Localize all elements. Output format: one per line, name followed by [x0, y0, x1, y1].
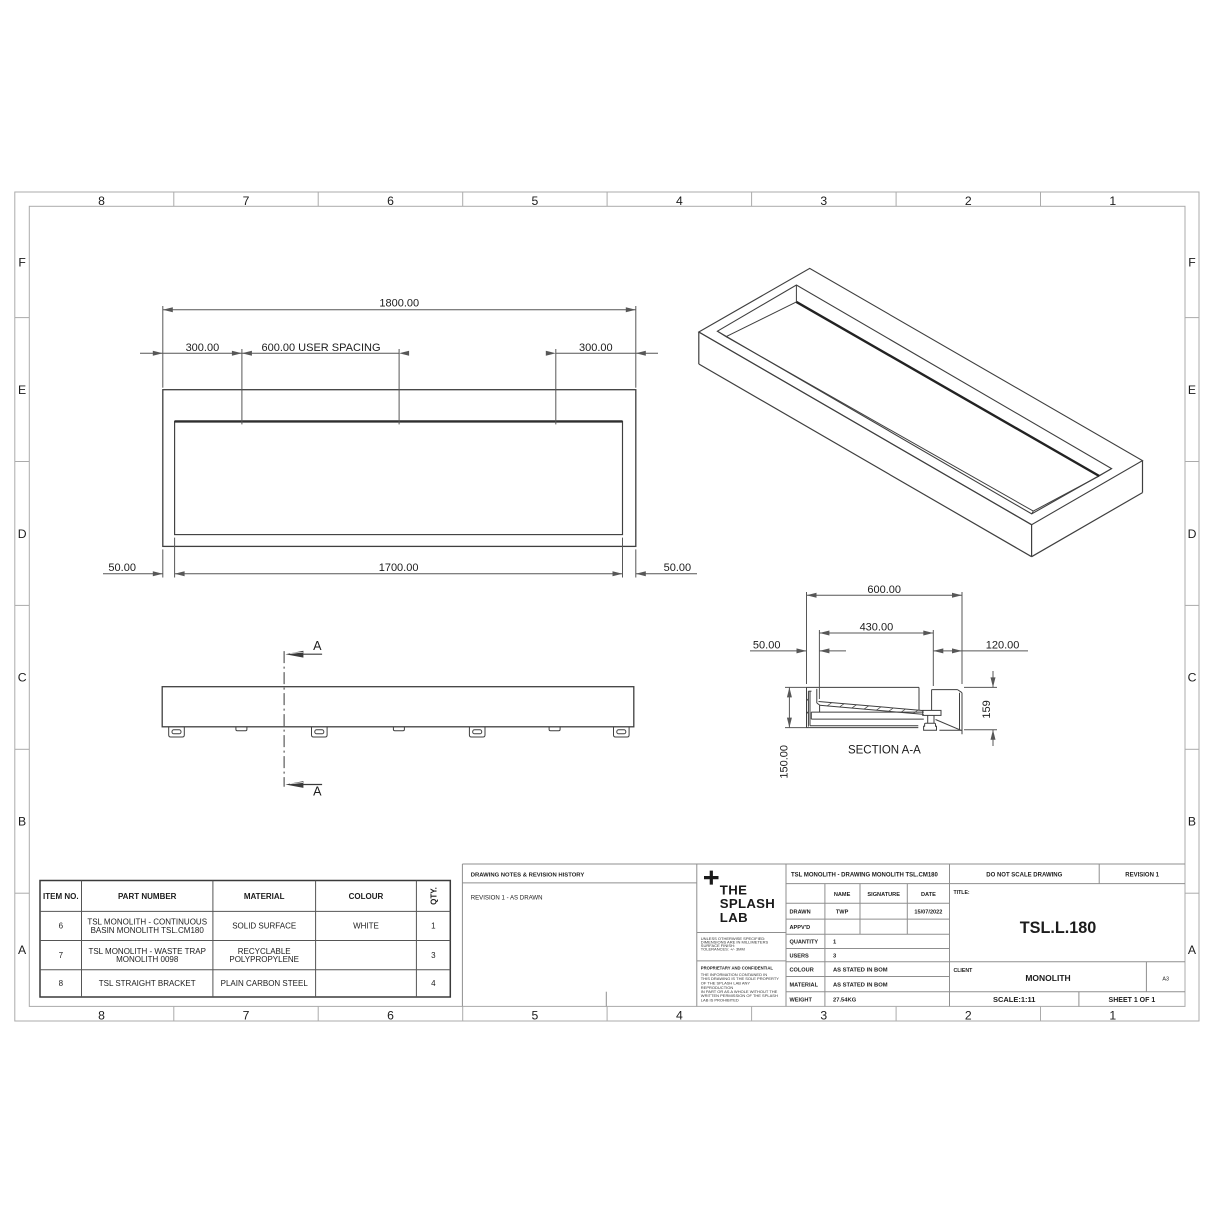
svg-text:A3: A3	[1162, 976, 1169, 982]
svg-text:MATERIAL: MATERIAL	[790, 982, 819, 988]
svg-text:4: 4	[431, 979, 436, 988]
svg-text:REVISION 1: REVISION 1	[1125, 873, 1159, 879]
svg-text:SHEET 1 OF 1: SHEET 1 OF 1	[1109, 997, 1156, 1004]
svg-text:MONOLITH: MONOLITH	[1025, 973, 1070, 983]
svg-text:PROPRIETARY AND CONFIDENTIAL: PROPRIETARY AND CONFIDENTIAL	[701, 966, 774, 971]
svg-text:5: 5	[532, 194, 539, 208]
svg-text:E: E	[18, 383, 26, 397]
svg-text:SPLASH: SPLASH	[720, 896, 775, 911]
svg-text:BASIN MONOLITH TSL.CM180: BASIN MONOLITH TSL.CM180	[91, 926, 205, 935]
svg-text:TOLERANCES: +/- 3MM: TOLERANCES: +/- 3MM	[701, 947, 745, 952]
svg-text:AS STATED IN BOM: AS STATED IN BOM	[833, 967, 888, 973]
svg-text:DATE: DATE	[921, 892, 936, 898]
svg-text:8: 8	[98, 194, 105, 208]
svg-text:430.00: 430.00	[860, 622, 894, 634]
svg-text:1: 1	[1109, 194, 1116, 208]
svg-text:150.00: 150.00	[779, 745, 791, 779]
svg-text:SECTION A-A: SECTION A-A	[848, 745, 921, 757]
svg-text:50.00: 50.00	[664, 562, 692, 574]
svg-text:ITEM NO.: ITEM NO.	[43, 892, 79, 901]
svg-text:TSL STRAIGHT BRACKET: TSL STRAIGHT BRACKET	[99, 979, 196, 988]
svg-text:QUANTITY: QUANTITY	[790, 940, 819, 946]
svg-text:D: D	[1188, 527, 1197, 541]
svg-text:DRAWING NOTES & REVISION HISTO: DRAWING NOTES & REVISION HISTORY	[471, 873, 585, 879]
svg-text:3: 3	[820, 194, 827, 208]
svg-text:USERS: USERS	[790, 954, 810, 960]
svg-text:REVISION 1 - AS DRAWN: REVISION 1 - AS DRAWN	[471, 895, 543, 902]
svg-text:C: C	[18, 671, 27, 685]
svg-text:AS STATED IN BOM: AS STATED IN BOM	[833, 982, 888, 988]
svg-text:C: C	[1188, 671, 1197, 685]
svg-text:SOLID SURFACE: SOLID SURFACE	[232, 922, 296, 931]
svg-text:159: 159	[981, 700, 993, 718]
svg-text:1700.00: 1700.00	[379, 562, 419, 574]
svg-text:A: A	[18, 943, 27, 957]
svg-text:3: 3	[820, 1009, 827, 1023]
svg-text:APPV'D: APPV'D	[790, 925, 811, 931]
svg-text:27.54KG: 27.54KG	[833, 997, 857, 1003]
svg-text:COLOUR: COLOUR	[349, 892, 384, 901]
svg-text:3: 3	[431, 951, 436, 960]
svg-text:PART NUMBER: PART NUMBER	[118, 892, 177, 901]
svg-text:5: 5	[532, 1009, 539, 1023]
svg-text:COLOUR: COLOUR	[790, 967, 814, 973]
svg-text:15/07/2022: 15/07/2022	[914, 910, 942, 916]
svg-text:WEIGHT: WEIGHT	[790, 997, 813, 1003]
svg-text:LAB IS PROHIBITED: LAB IS PROHIBITED	[701, 998, 739, 1003]
svg-text:8: 8	[98, 1009, 105, 1023]
svg-text:2: 2	[965, 1009, 972, 1023]
svg-text:1: 1	[431, 922, 436, 931]
svg-text:2: 2	[965, 194, 972, 208]
svg-text:50.00: 50.00	[108, 562, 136, 574]
svg-text:600.00 USER SPACING: 600.00 USER SPACING	[261, 342, 380, 354]
svg-text:SIGNATURE: SIGNATURE	[867, 892, 900, 898]
svg-text:D: D	[18, 527, 27, 541]
svg-text:CLIENT: CLIENT	[954, 968, 974, 974]
svg-text:7: 7	[59, 951, 64, 960]
svg-text:50.00: 50.00	[753, 640, 781, 652]
svg-text:4: 4	[676, 194, 683, 208]
svg-text:4: 4	[676, 1009, 683, 1023]
svg-text:A: A	[313, 639, 322, 653]
svg-text:6: 6	[387, 1009, 394, 1023]
svg-text:NAME: NAME	[834, 892, 851, 898]
svg-text:8: 8	[59, 979, 64, 988]
svg-text:600.00: 600.00	[867, 584, 901, 596]
svg-text:TWP: TWP	[836, 910, 849, 916]
svg-text:300.00: 300.00	[186, 342, 220, 354]
svg-text:1800.00: 1800.00	[379, 298, 419, 310]
svg-text:SCALE:1:11: SCALE:1:11	[993, 995, 1036, 1004]
svg-text:E: E	[1188, 383, 1196, 397]
svg-text:300.00: 300.00	[579, 342, 613, 354]
svg-text:B: B	[18, 815, 26, 829]
svg-text:A: A	[1188, 943, 1197, 957]
svg-text:F: F	[18, 255, 25, 269]
svg-text:PLAIN CARBON STEEL: PLAIN CARBON STEEL	[221, 979, 309, 988]
svg-text:6: 6	[59, 922, 64, 931]
svg-text:F: F	[1188, 255, 1195, 269]
svg-text:120.00: 120.00	[986, 640, 1020, 652]
svg-text:MATERIAL: MATERIAL	[244, 892, 285, 901]
svg-text:POLYPROPYLENE: POLYPROPYLENE	[229, 955, 299, 964]
svg-text:DRAWN: DRAWN	[790, 910, 811, 916]
svg-text:TSL MONOLITH - DRAWING MONOLIT: TSL MONOLITH - DRAWING MONOLITH TSL.CM18…	[791, 873, 939, 879]
svg-text:TITLE:: TITLE:	[954, 890, 970, 896]
svg-text:B: B	[1188, 815, 1196, 829]
svg-text:TSL.L.180: TSL.L.180	[1020, 919, 1096, 937]
svg-text:A: A	[313, 785, 322, 799]
svg-text:WHITE: WHITE	[353, 922, 379, 931]
svg-text:DO NOT SCALE DRAWING: DO NOT SCALE DRAWING	[986, 873, 1062, 879]
svg-text:6: 6	[387, 194, 394, 208]
svg-text:QTY.: QTY.	[430, 887, 439, 905]
svg-text:LAB: LAB	[720, 910, 748, 925]
svg-text:1: 1	[1109, 1009, 1116, 1023]
svg-text:7: 7	[243, 1009, 250, 1023]
svg-text:7: 7	[243, 194, 250, 208]
svg-text:MONOLITH 0098: MONOLITH 0098	[116, 955, 179, 964]
